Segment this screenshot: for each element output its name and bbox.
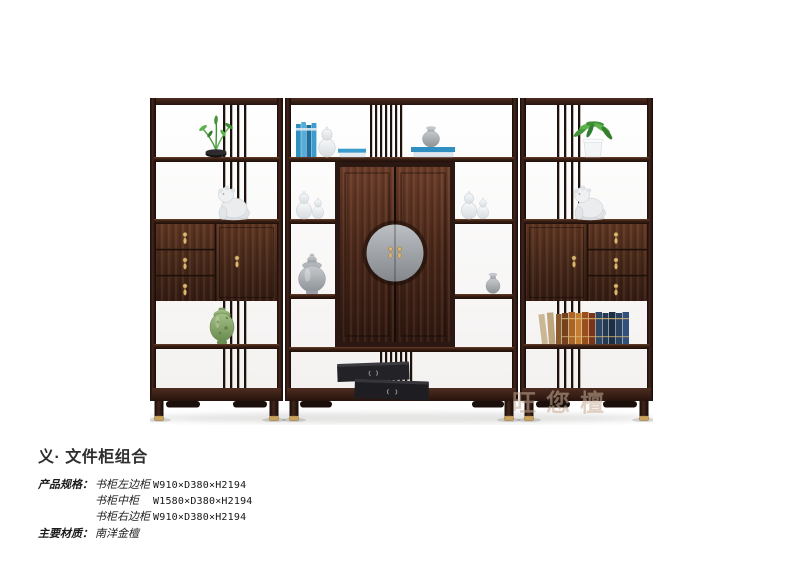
black-box [337,361,410,382]
right-cabinet-unit [520,98,653,421]
spec-item-name: 书柜右边柜 [95,508,153,524]
door-drawer-block [526,224,647,301]
spec-item-dims: W910×D380×H2194 [153,512,246,523]
product-title: 义· 文件柜组合 [38,443,253,467]
spec-row: 产品规格： 书柜左边柜 W910×D380×H2194 [38,476,253,492]
spec-item-dims: W1580×D380×H2194 [153,496,253,507]
leather-books [538,312,629,344]
spec-item-dims: W910×D380×H2194 [153,480,246,491]
center-door-cabinet [335,162,455,347]
furniture-illustration [150,98,653,425]
product-photo [150,98,653,425]
material-label: 主要材质： [38,525,95,541]
material-row: 主要材质： 南洋金檀 [38,525,253,541]
material-value: 南洋金檀 [95,525,153,541]
product-info: 义· 文件柜组合 产品规格： 书柜左边柜 W910×D380×H2194 书柜中… [38,443,253,541]
catalog-page: 旺您檀 义· 文件柜组合 产品规格： 书柜左边柜 W910×D380×H2194… [0,0,800,566]
spec-row: 书柜右边柜 W910×D380×H2194 [38,508,253,524]
spec-item-name: 书柜左边柜 [95,476,153,492]
spec-item-name: 书柜中柜 [95,492,153,508]
center-cabinet-unit [285,98,518,421]
left-cabinet-unit [150,98,283,421]
spec-row: 书柜中柜 W1580×D380×H2194 [38,492,253,508]
drawer-door-block [156,224,277,301]
floor-shadow [150,413,653,424]
black-box [354,379,429,401]
specs-label: 产品规格： [38,476,95,492]
blue-books-right [411,147,455,157]
